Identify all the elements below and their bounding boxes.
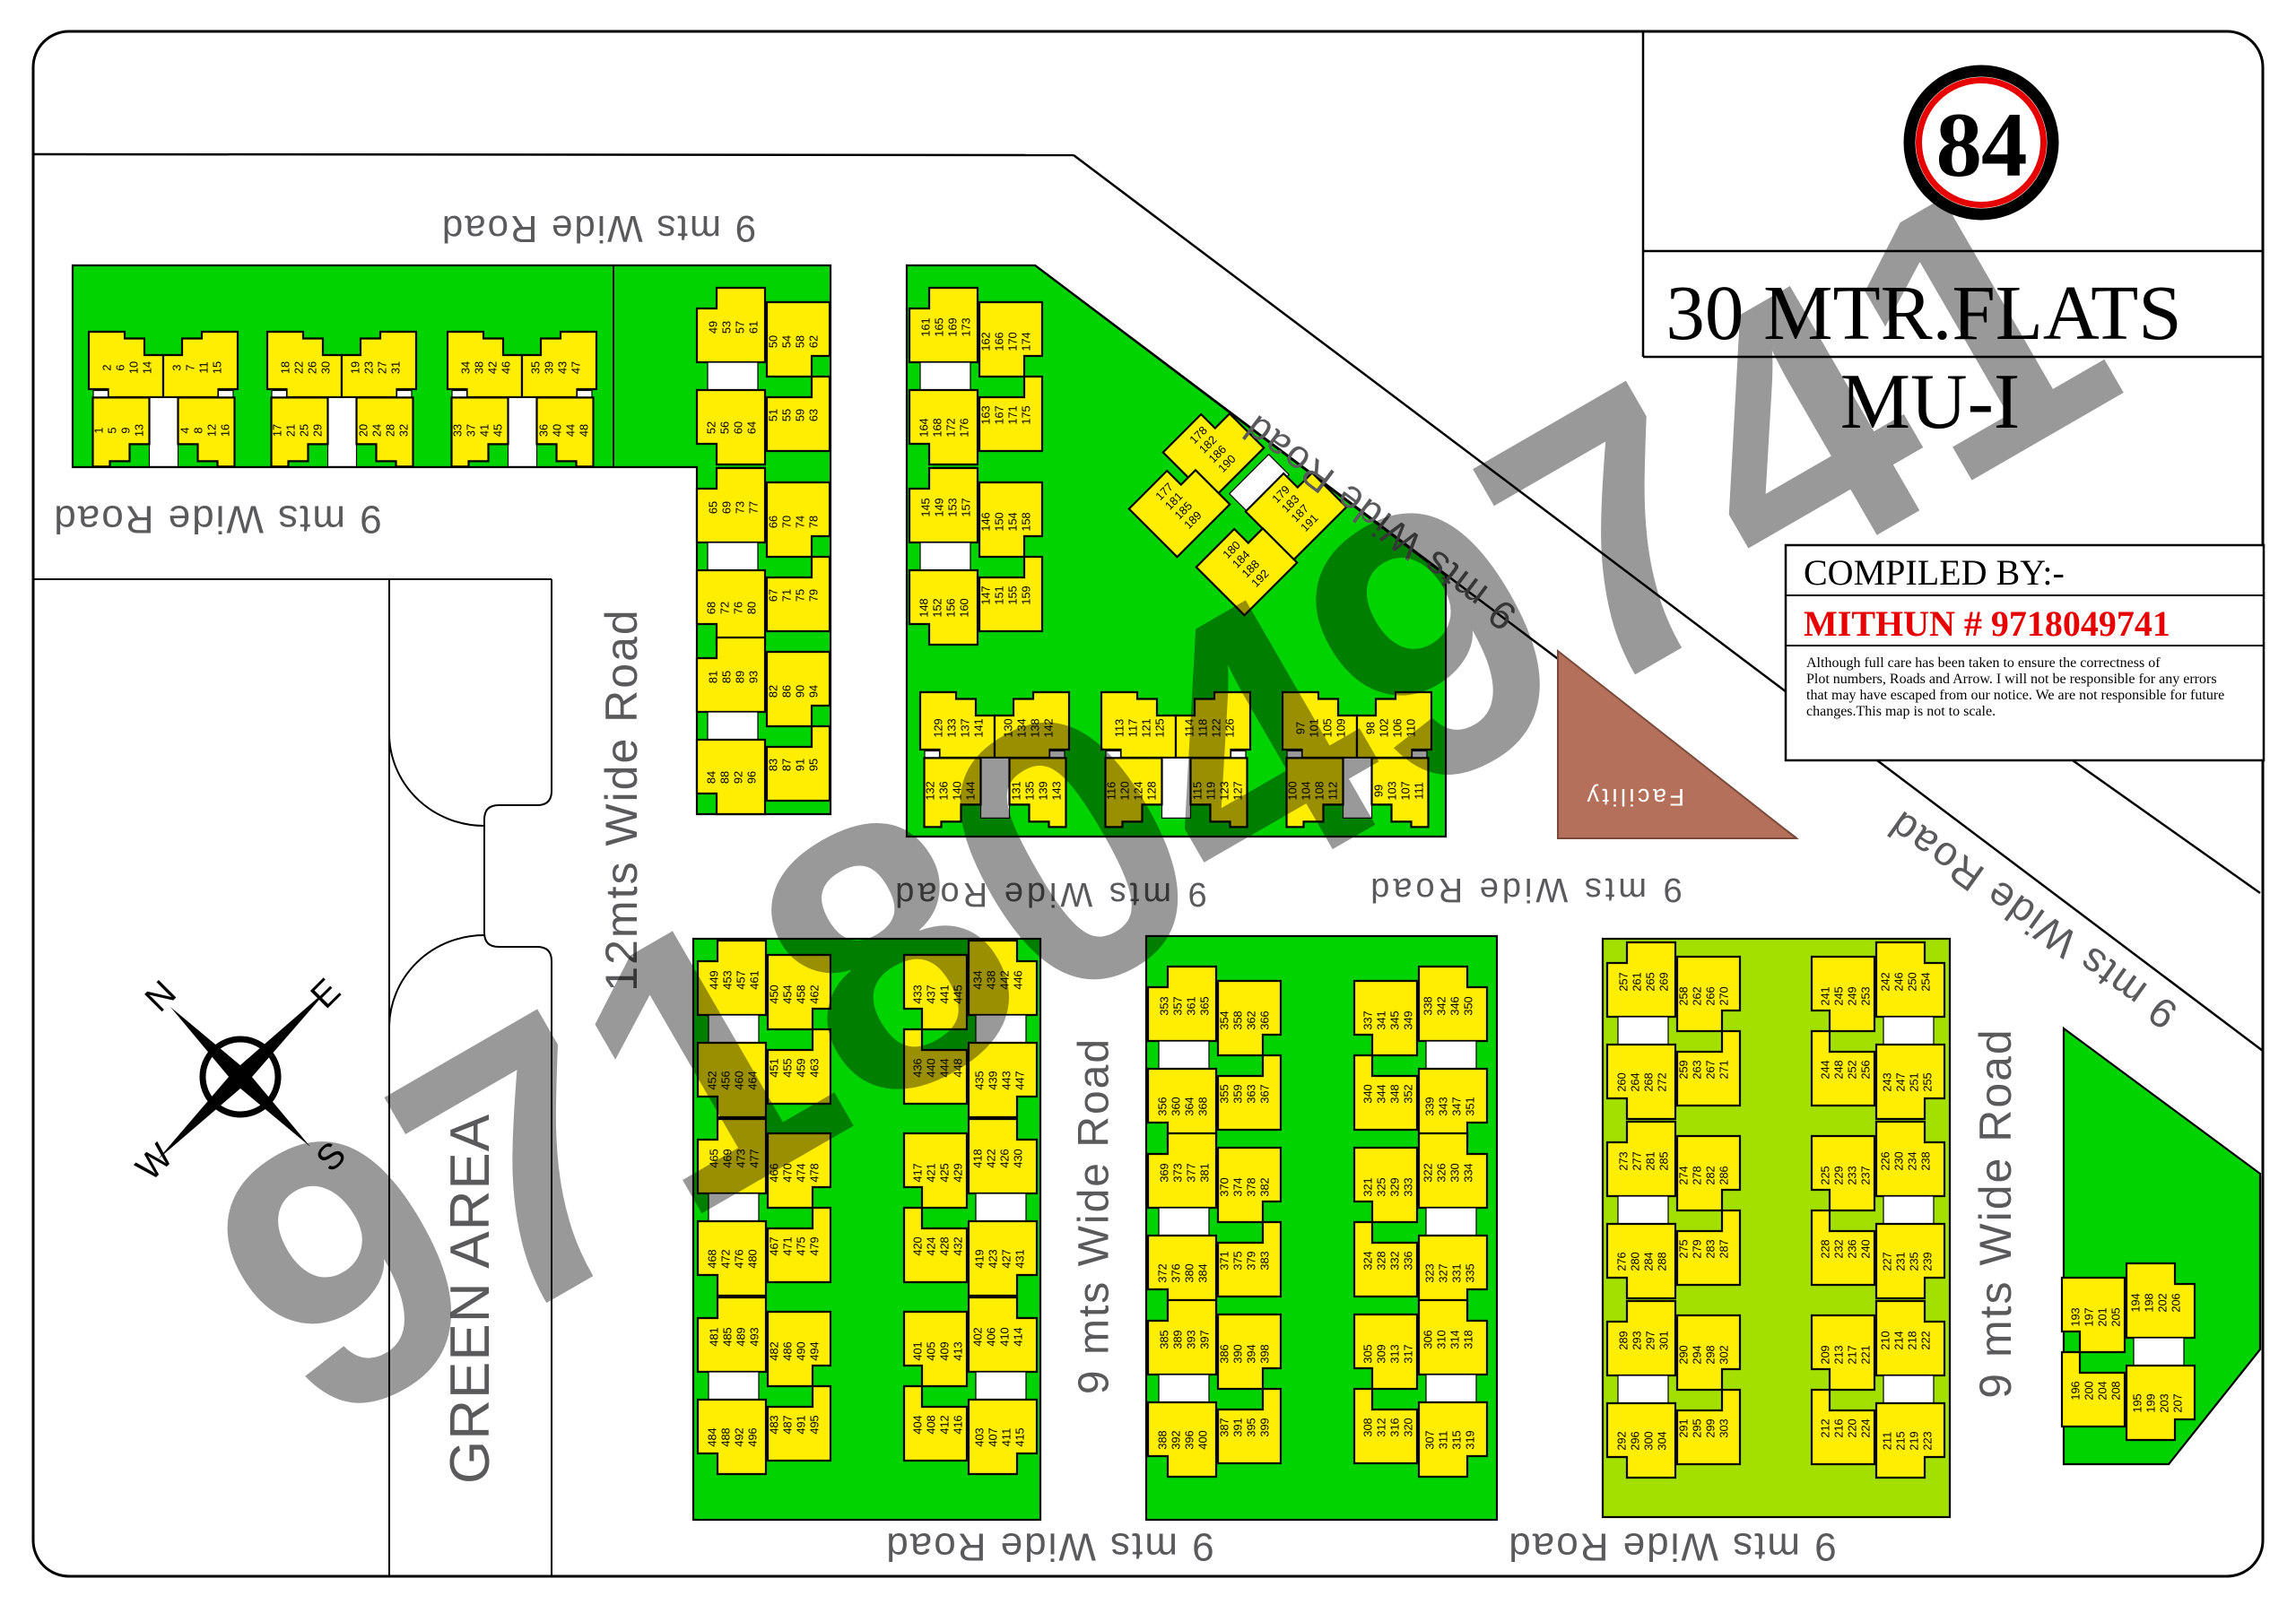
svg-text:146150154158: 146150154158 [979, 512, 1033, 531]
svg-text:9 mts Wide Road: 9 mts Wide Road [1507, 1524, 1836, 1568]
svg-text:420424428432: 420424428432 [911, 1236, 965, 1255]
svg-text:51555963: 51555963 [767, 409, 821, 421]
svg-text:339343347351: 339343347351 [1423, 1097, 1477, 1115]
svg-text:9 mts Wide Road: 9 mts Wide Road [52, 497, 381, 541]
svg-text:241245249253: 241245249253 [1819, 986, 1873, 1005]
svg-text:84: 84 [1936, 94, 2027, 196]
svg-text:274278282286: 274278282286 [1677, 1166, 1731, 1184]
svg-text:147151155159: 147151155159 [979, 585, 1033, 604]
svg-text:145149153157: 145149153157 [919, 498, 973, 516]
svg-text:258262266270: 258262266270 [1677, 986, 1731, 1005]
svg-text:273277281285: 273277281285 [1617, 1151, 1671, 1170]
svg-text:212216220224: 212216220224 [1819, 1418, 1873, 1437]
svg-text:9 mts Wide Road: 9 mts Wide Road [884, 1524, 1213, 1568]
svg-text:MITHUN # 9718049741: MITHUN # 9718049741 [1804, 603, 2170, 644]
svg-text:355359363367: 355359363367 [1218, 1084, 1272, 1103]
svg-text:195199203207: 195199203207 [2131, 1393, 2185, 1412]
svg-text:82869094: 82869094 [767, 685, 821, 698]
svg-text:307311315319: 307311315319 [1423, 1430, 1477, 1449]
svg-text:227231235239: 227231235239 [1881, 1252, 1935, 1271]
svg-text:260264268272: 260264268272 [1615, 1072, 1669, 1091]
svg-text:52566064: 52566064 [705, 421, 759, 434]
svg-text:17212529: 17212529 [271, 424, 325, 437]
svg-text:386390394398: 386390394398 [1218, 1344, 1272, 1363]
svg-text:33374145: 33374145 [451, 424, 505, 437]
svg-text:196200204208: 196200204208 [2069, 1381, 2123, 1400]
svg-text:19232731: 19232731 [349, 361, 403, 374]
svg-text:324328332336: 324328332336 [1361, 1251, 1415, 1270]
svg-text:484488492496: 484488492496 [706, 1427, 760, 1446]
svg-text:211215219223: 211215219223 [1881, 1431, 1935, 1450]
svg-text:372376380384: 372376380384 [1156, 1263, 1210, 1282]
svg-text:50545862: 50545862 [767, 335, 821, 348]
svg-text:66707478: 66707478 [767, 516, 821, 528]
svg-text:290294298302: 290294298302 [1677, 1345, 1731, 1364]
svg-text:481485489493: 481485489493 [708, 1327, 761, 1346]
svg-text:9 mts Wide Road: 9 mts Wide Road [1970, 1028, 2021, 1398]
svg-text:322326330334: 322326330334 [1422, 1163, 1475, 1182]
svg-text:36404448: 36404448 [537, 424, 591, 437]
svg-text:292296300304: 292296300304 [1615, 1431, 1669, 1450]
svg-text:356360364368: 356360364368 [1156, 1097, 1210, 1115]
svg-text:323327331335: 323327331335 [1423, 1263, 1477, 1282]
svg-text:193197201205: 193197201205 [2069, 1307, 2123, 1326]
svg-text:388392396400: 388392396400 [1156, 1430, 1210, 1449]
svg-text:225229233237: 225229233237 [1819, 1166, 1873, 1184]
svg-text:81858993: 81858993 [707, 671, 761, 683]
svg-text:194198202206: 194198202206 [2129, 1293, 2183, 1312]
svg-text:321325329333: 321325329333 [1361, 1177, 1415, 1196]
svg-text:9 mts Wide Road: 9 mts Wide Road [1071, 1037, 1118, 1394]
svg-text:210214218222: 210214218222 [1879, 1331, 1933, 1349]
svg-text:84889296: 84889296 [705, 771, 759, 784]
svg-text:403407411415: 403407411415 [973, 1427, 1027, 1446]
svg-text:209213217221: 209213217221 [1819, 1345, 1873, 1364]
svg-text:483487491495: 483487491495 [768, 1415, 822, 1434]
svg-text:164168172176: 164168172176 [918, 418, 971, 437]
svg-text:308312316320: 308312316320 [1361, 1418, 1415, 1436]
svg-text:305309313317: 305309313317 [1361, 1344, 1415, 1363]
svg-text:244248252256: 244248252256 [1819, 1060, 1873, 1079]
svg-text:9 mts Wide Road: 9 mts Wide Road [440, 208, 756, 250]
svg-text:306310314318: 306310314318 [1422, 1330, 1475, 1349]
svg-text:387391395399: 387391395399 [1218, 1418, 1272, 1436]
svg-text:257261265269: 257261265269 [1617, 972, 1671, 991]
svg-text:402406410414: 402406410414 [971, 1327, 1025, 1346]
svg-text:34384246: 34384246 [459, 361, 513, 374]
svg-text:65697377: 65697377 [707, 501, 761, 514]
svg-text:418422426430: 418422426430 [971, 1149, 1025, 1167]
svg-text:385389393397: 385389393397 [1158, 1330, 1212, 1349]
svg-text:401405409413: 401405409413 [911, 1341, 965, 1360]
svg-text:419423427431: 419423427431 [973, 1249, 1027, 1268]
svg-text:163167171175: 163167171175 [979, 405, 1033, 424]
svg-text:30 MTR.FLATS: 30 MTR.FLATS [1665, 269, 2181, 356]
svg-text:148152156160: 148152156160 [918, 598, 971, 617]
svg-text:243247251255: 243247251255 [1881, 1072, 1935, 1091]
svg-text:276280284288: 276280284288 [1615, 1252, 1669, 1271]
svg-text:226230234238: 226230234238 [1879, 1151, 1933, 1170]
svg-text:482486490494: 482486490494 [768, 1341, 822, 1360]
svg-text:289293297301: 289293297301 [1617, 1331, 1671, 1349]
svg-text:20242832: 20242832 [357, 424, 411, 437]
svg-text:370374378382: 370374378382 [1218, 1177, 1272, 1196]
svg-text:162166170174: 162166170174 [979, 332, 1033, 351]
svg-text:COMPILED BY:-: COMPILED BY:- [1804, 552, 2065, 593]
svg-text:371375379383: 371375379383 [1218, 1251, 1272, 1270]
svg-text:259263267271: 259263267271 [1677, 1060, 1731, 1079]
svg-text:354358362366: 354358362366 [1218, 1010, 1272, 1029]
svg-text:228232236240: 228232236240 [1819, 1239, 1873, 1258]
svg-text:404408412416: 404408412416 [911, 1415, 965, 1434]
svg-text:161165169173: 161165169173 [919, 317, 973, 336]
svg-text:35394347: 35394347 [529, 361, 583, 374]
svg-text:337341345349: 337341345349 [1361, 1010, 1415, 1029]
svg-text:340344348352: 340344348352 [1361, 1084, 1415, 1103]
svg-text:369373377381: 369373377381 [1158, 1163, 1212, 1182]
svg-text:242246250254: 242246250254 [1879, 972, 1933, 991]
svg-text:275279283287: 275279283287 [1677, 1239, 1731, 1258]
svg-text:67717579: 67717579 [767, 589, 821, 602]
svg-text:49535761: 49535761 [707, 321, 761, 334]
svg-text:68727680: 68727680 [705, 602, 759, 614]
svg-text:291295299303: 291295299303 [1677, 1418, 1731, 1437]
svg-text:18222630: 18222630 [279, 361, 333, 374]
svg-text:MU-I: MU-I [1840, 359, 2020, 446]
svg-text:338342346350: 338342346350 [1422, 996, 1475, 1015]
